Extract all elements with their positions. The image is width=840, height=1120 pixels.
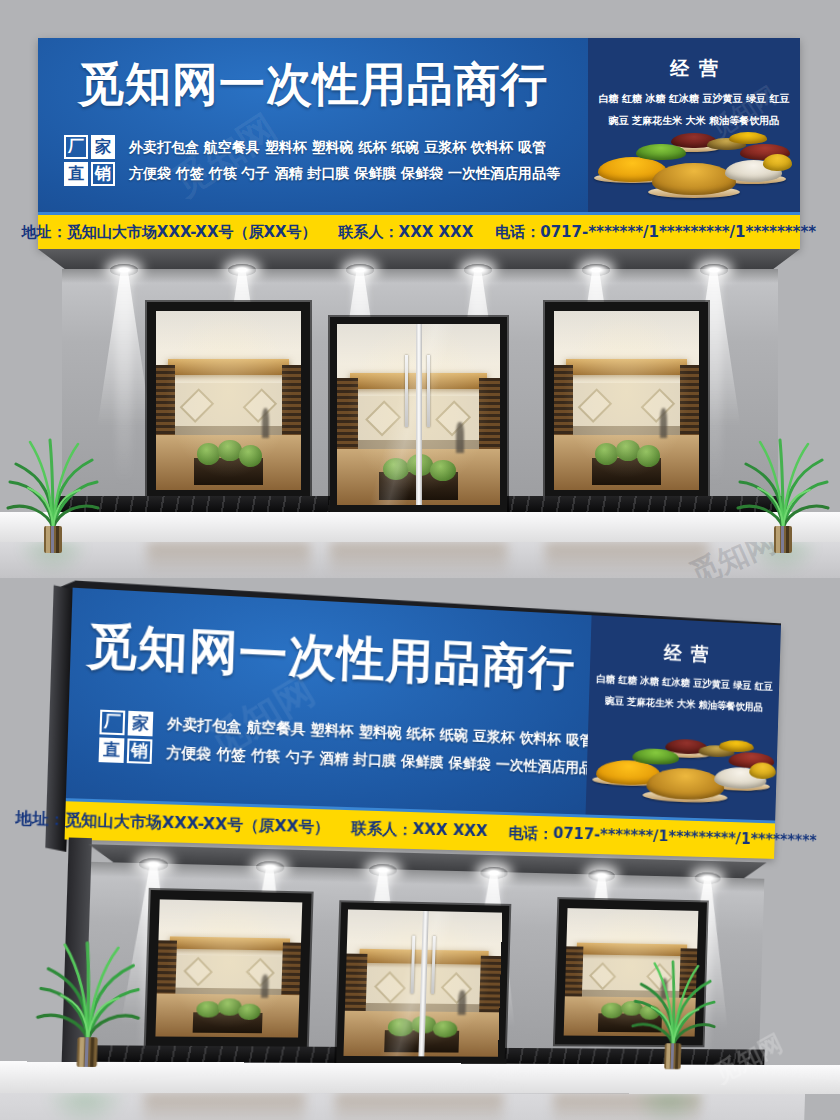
- spotlight-lamp: [700, 264, 728, 276]
- product-list-line1: 外卖打包盒 航空餐具 塑料杯 塑料碗 纸杯 纸碗 豆浆杯 饮料杯 吸管: [129, 134, 560, 160]
- business-heading: 经营: [590, 637, 780, 671]
- sign-main-panel: 觅知网一次性用品商行 厂 家 直 销 外卖打包盒 航空餐具 塑料杯 塑料碗 纸杯…: [66, 588, 592, 815]
- window-reflection: [143, 1093, 305, 1120]
- window-frame: [545, 302, 708, 499]
- storefront-angled-view: 觅知网一次性用品商行 厂 家 直 销 外卖打包盒 航空餐具 塑料杯 塑料碗 纸杯…: [0, 578, 840, 1120]
- product-list: 外卖打包盒 航空餐具 塑料杯 塑料碗 纸杯 纸碗 豆浆杯 饮料杯 吸管 方便袋 …: [129, 134, 560, 186]
- sign-canopy: [38, 249, 800, 269]
- interior-light-glow: [156, 311, 301, 490]
- business-heading: 经营: [588, 56, 800, 82]
- badge-cell: 直: [64, 162, 88, 186]
- contact-person: 联系人：XXX XXX: [339, 223, 474, 242]
- grain-plates-image: [598, 130, 790, 206]
- spotlight-lamp: [480, 867, 507, 880]
- potted-plant-right: [736, 424, 830, 556]
- badge-cell: 家: [91, 135, 115, 159]
- display-window-left: [146, 890, 312, 1047]
- spotlight-lamp: [694, 872, 720, 884]
- badge-cell: 家: [128, 710, 154, 736]
- potted-plant-left: [33, 907, 144, 1088]
- palm-plant-graphic: [33, 907, 144, 1088]
- badge-cell: 厂: [64, 135, 88, 159]
- interior-view: [155, 899, 302, 1037]
- spotlight-lamp: [255, 861, 284, 874]
- spotlight-lamp: [464, 264, 492, 276]
- shop-sign-title: 觅知网一次性用品商行: [70, 612, 591, 701]
- lobby-interior: [156, 311, 301, 490]
- poster-canvas: 觅知网一次性用品商行 厂 家 直 销 外卖打包盒 航空餐具 塑料杯 塑料碗 纸杯…: [0, 0, 840, 1120]
- grain-plates-image: [595, 733, 775, 813]
- plant-reflection: [632, 1094, 707, 1120]
- badge-cell: 直: [99, 737, 125, 763]
- badge-cell: 销: [127, 738, 153, 764]
- spotlight-lamp: [369, 864, 397, 877]
- door-frame: [336, 902, 509, 1063]
- grain-pile-corn-back: [718, 739, 753, 752]
- spotlight-lamp: [589, 869, 616, 881]
- spotlight-lamp: [139, 858, 168, 871]
- spotlight-lamp: [346, 264, 374, 276]
- phone-number: 电话：0717-*******/1*********/1*********: [508, 823, 817, 852]
- interior-view: [156, 311, 301, 490]
- sidewalk-step: [0, 512, 840, 542]
- address: 地址：觅知山大市场XXX-XX号（原XX号）: [22, 223, 317, 242]
- products-row: 厂 家 直 销 外卖打包盒 航空餐具 塑料杯 塑料碗 纸杯 纸碗 豆浆杯 饮料杯…: [64, 134, 560, 186]
- business-line2: 豌豆 芝麻花生米 大米 粮油等餐饮用品: [589, 693, 779, 715]
- entrance-door: [330, 317, 507, 512]
- door-mullion: [416, 324, 422, 505]
- reflective-floor: 觅知网: [0, 542, 840, 578]
- lobby-interior: [554, 311, 699, 490]
- contact-bar: 地址：觅知山大市场XXX-XX号（原XX号） 联系人：XXX XXX 电话：07…: [38, 215, 800, 249]
- business-line2: 豌豆 芝麻花生米 大米 粮油等餐饮用品: [588, 114, 800, 128]
- plant-reflection: [43, 1093, 128, 1120]
- palm-plant-graphic: [6, 424, 100, 556]
- door-handle: [427, 355, 430, 427]
- interior-light-glow: [554, 311, 699, 490]
- badge-cell: 销: [91, 162, 115, 186]
- factory-direct-badge: 厂 家 直 销: [99, 709, 154, 763]
- product-list: 外卖打包盒 航空餐具 塑料杯 塑料碗 纸杯 纸碗 豆浆杯 饮料杯 吸管 方便袋 …: [166, 709, 592, 782]
- interior-view: [554, 311, 699, 490]
- lobby-interior: [155, 899, 302, 1037]
- interior-light-glow: [155, 899, 302, 1037]
- door-glass-interior: [343, 909, 502, 1056]
- sign-main-panel: 觅知网一次性用品商行 厂 家 直 销 外卖打包盒 航空餐具 塑料杯 塑料碗 纸杯…: [38, 38, 588, 212]
- door-frame: [330, 317, 507, 512]
- factory-direct-badge: 厂 家 直 销: [64, 135, 115, 186]
- palm-plant-graphic: [629, 935, 719, 1083]
- perspective-wrapper: 觅知网一次性用品商行 厂 家 直 销 外卖打包盒 航空餐具 塑料杯 塑料碗 纸杯…: [0, 578, 820, 1120]
- sign-business-panel: 经营 白糖 红糖 冰糖 红冰糖 豆沙黄豆 绿豆 红豆 豌豆 芝麻花生米 大米 粮…: [586, 615, 781, 820]
- storefront-front-view: 觅知网一次性用品商行 厂 家 直 销 外卖打包盒 航空餐具 塑料杯 塑料碗 纸杯…: [0, 0, 840, 578]
- palm-plant-graphic: [736, 424, 830, 556]
- shop-sign-angled: 觅知网一次性用品商行 厂 家 直 销 外卖打包盒 航空餐具 塑料杯 塑料碗 纸杯…: [65, 588, 781, 859]
- potted-plant-left: [6, 424, 100, 556]
- entrance-door: [336, 902, 509, 1063]
- reflective-floor: 觅知网: [0, 1093, 805, 1120]
- shop-sign-title: 觅知网一次性用品商行: [38, 54, 588, 116]
- window-frame: [146, 890, 312, 1047]
- business-line1: 白糖 红糖 冰糖 红冰糖 豆沙黄豆 绿豆 红豆: [589, 672, 779, 694]
- grain-pile-millet-right: [749, 762, 776, 779]
- window-reflection: [545, 542, 708, 576]
- window-reflection: [147, 542, 310, 576]
- spotlight-lamp: [582, 264, 610, 276]
- display-window-left: [147, 302, 310, 499]
- door-handle: [405, 355, 408, 427]
- grain-pile-corn-center: [652, 163, 736, 195]
- door-reflection: [334, 1093, 503, 1120]
- display-window-right: [545, 302, 708, 499]
- potted-plant-right: [629, 935, 719, 1083]
- shop-sign: 觅知网一次性用品商行 厂 家 直 销 外卖打包盒 航空餐具 塑料杯 塑料碗 纸杯…: [38, 38, 800, 249]
- product-list-line2: 方便袋 竹签 竹筷 勺子 酒精 封口膜 保鲜膜 保鲜袋 一次性酒店用品等: [129, 160, 560, 186]
- badge-cell: 厂: [99, 709, 125, 735]
- sign-business-panel: 经营 白糖 红糖 冰糖 红冰糖 豆沙黄豆 绿豆 红豆 豌豆 芝麻花生米 大米 粮…: [588, 38, 800, 212]
- spotlight-lamp: [110, 264, 138, 276]
- products-row: 厂 家 直 销 外卖打包盒 航空餐具 塑料杯 塑料碗 纸杯 纸碗 豆浆杯 饮料杯…: [99, 707, 592, 782]
- spotlight-lamp: [228, 264, 256, 276]
- spotlight-beam: [97, 272, 151, 427]
- door-glass-interior: [337, 324, 500, 505]
- business-line1: 白糖 红糖 冰糖 红冰糖 豆沙黄豆 绿豆 红豆: [588, 92, 800, 106]
- grain-pile-corn-back: [729, 132, 767, 144]
- store-facade: [62, 269, 778, 512]
- grain-pile-millet-right: [763, 154, 792, 171]
- contact-person: 联系人：XXX XXX: [351, 818, 488, 843]
- window-frame: [147, 302, 310, 499]
- door-reflection: [330, 542, 507, 576]
- phone-number: 电话：0717-*******/1*********/1*********: [495, 223, 816, 242]
